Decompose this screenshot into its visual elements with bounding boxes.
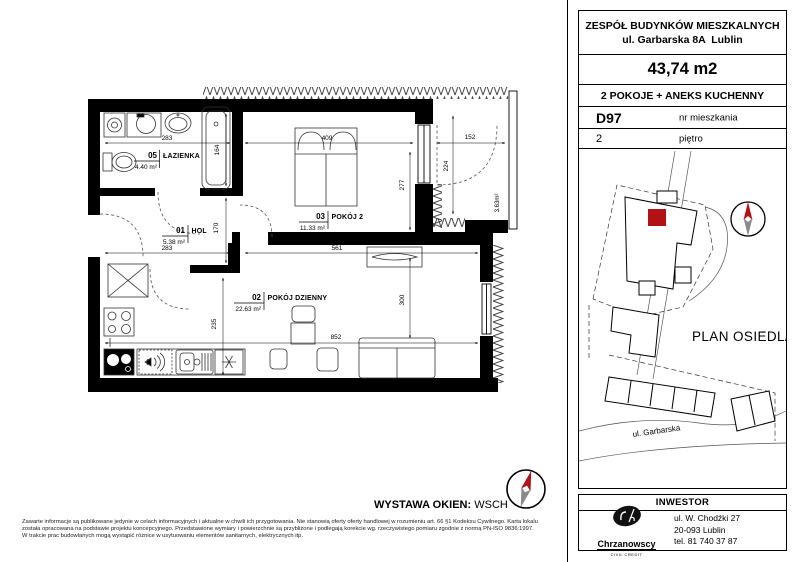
svg-text:HOL: HOL — [192, 228, 208, 235]
dim-living-total: 852 — [331, 334, 342, 341]
info-table: ZESPÓŁ BUDYNKÓW MIESZKALNYCH ul. Garbars… — [578, 10, 787, 489]
svg-text:POKÓJ 2: POKÓJ 2 — [332, 212, 364, 221]
dim-kitchen-height: 235 — [211, 318, 218, 329]
dim-bathtub: 164 — [214, 144, 221, 155]
investor-logo: Chrzanowscy CIVIL CREDIT — [579, 505, 674, 557]
dim-bedroom-height: 277 — [399, 179, 406, 190]
washing-machine — [104, 113, 125, 137]
sidebar: ZESPÓŁ BUDYNKÓW MIESZKALNYCH ul. Garbars… — [578, 0, 787, 562]
svg-text:01: 01 — [176, 226, 185, 235]
svg-text:4.40 m²: 4.40 m² — [135, 164, 158, 171]
disclaimer-line-3: W trakcie prac budowlanych mogą wystąpić… — [22, 533, 567, 540]
floor-label: piętro — [679, 133, 703, 144]
investor-address: ul. W. Chodźki 27 20-093 Lublin tel. 81 … — [674, 513, 740, 548]
investor-address-line2: 20-093 Lublin — [674, 525, 740, 537]
street-label: ul. Garbarska — [632, 423, 681, 439]
compass-icon — [503, 464, 549, 514]
dim-hall-width: 283 — [162, 245, 173, 252]
dishwasher — [139, 350, 172, 374]
room-label-hall: 01 HOL 5.38 m² — [162, 225, 207, 246]
svg-text:ŁAZIENKA: ŁAZIENKA — [163, 153, 200, 160]
total-area: 43,74 m2 — [579, 55, 786, 85]
site-compass-icon — [731, 202, 765, 236]
wardrobe — [108, 264, 148, 297]
investor-address-line3: tel. 81 740 37 87 — [674, 536, 740, 548]
dim-living-height: 300 — [399, 294, 406, 305]
balcony-area-label: 3.63m² — [495, 194, 501, 213]
building-3 — [605, 377, 715, 417]
building-4 — [731, 391, 775, 431]
toilet — [103, 153, 136, 172]
apartment-number-row: D97 nr mieszkania — [579, 107, 786, 129]
window-exposure-label: WYSTAWA OKIEN: — [374, 499, 471, 511]
sofa — [359, 338, 435, 378]
apartment-number: D97 — [596, 110, 622, 126]
fridge — [215, 350, 243, 374]
svg-text:11.33 m²: 11.33 m² — [300, 225, 326, 232]
apartment-number-label: nr mieszkania — [679, 112, 738, 123]
window-exposure: WYSTAWA OKIEN: WSCH — [374, 499, 508, 511]
investor-address-line1: ul. W. Chodźki 27 — [674, 513, 740, 525]
site-plan: PLAN OSIEDLA ul. Garbarska — [579, 149, 786, 489]
dim-balcony-height: 224 — [443, 160, 450, 171]
vertical-divider — [567, 0, 568, 562]
investor-logo-icon — [609, 505, 645, 529]
svg-text:POKÓJ DZIENNY: POKÓJ DZIENNY — [268, 293, 328, 302]
dim-bath-width: 283 — [162, 135, 173, 142]
building-2 — [611, 307, 659, 357]
highlighted-unit — [648, 209, 666, 226]
dim-bedroom-width: 409 — [322, 135, 333, 142]
bathroom-sink-round — [127, 113, 161, 137]
dim-balcony-width: 152 — [465, 134, 476, 141]
project-title: ZESPÓŁ BUDYNKÓW MIESZKALNYCH ul. Garbars… — [579, 11, 786, 55]
apartment-card-page: 283 164 283 170 409 277 152 224 3.63m² 5… — [0, 0, 800, 562]
disclaimer: Zawarte informacje są publikowane jedyni… — [22, 519, 567, 541]
layout-type: 2 POKOJE + ANEKS KUCHENNY — [579, 85, 786, 107]
bathroom-basin — [165, 113, 191, 133]
project-title-line1: ZESPÓŁ BUDYNKÓW MIESZKALNYCH — [585, 19, 779, 33]
room-label-bathroom: 05 ŁAZIENKA 4.40 m² — [134, 150, 200, 171]
svg-text:5.38 m²: 5.38 m² — [163, 239, 186, 246]
disclaimer-line-1: Zawarte informacje są publikowane jedyni… — [22, 519, 567, 526]
svg-text:02: 02 — [252, 293, 261, 302]
investor-logo-name: Chrzanowscy — [597, 540, 655, 550]
project-title-line2: ul. Garbarska 8A Lublin — [622, 33, 742, 47]
site-plan-drawing: PLAN OSIEDLA ul. Garbarska — [579, 149, 786, 489]
svg-text:05: 05 — [148, 151, 157, 160]
balcony-railing — [509, 91, 517, 229]
room-label-living: 02 POKÓJ DZIENNY 22.63 m² — [234, 292, 327, 313]
investor-body: Chrzanowscy CIVIL CREDIT ul. W. Chodźki … — [579, 511, 786, 550]
investor-box: INWESTOR Chrzanowscy CIVIL CREDIT ul. — [578, 494, 787, 551]
kitchen-sink — [176, 350, 213, 374]
svg-text:22.63 m²: 22.63 m² — [235, 306, 261, 313]
dim-living-width: 561 — [332, 245, 343, 252]
floor-number: 2 — [596, 133, 602, 145]
floor-row: 2 piętro — [579, 129, 786, 149]
site-plan-title: PLAN OSIEDLA — [692, 329, 786, 344]
floor-plan-drawing: 283 164 283 170 409 277 152 224 3.63m² 5… — [0, 0, 567, 515]
svg-text:03: 03 — [316, 212, 325, 221]
sideboard — [367, 247, 422, 267]
kitchen-corner-unit — [104, 349, 134, 375]
investor-logo-subtitle: CIVIL CREDIT — [579, 552, 674, 557]
room-labels: 05 ŁAZIENKA 4.40 m² 01 HOL 5.38 m² 03 PO… — [134, 150, 363, 313]
dining-table-chairs — [270, 306, 338, 371]
room-label-bedroom: 03 POKÓJ 2 11.33 m² — [299, 211, 363, 232]
disclaimer-line-2: została opracowana na podstawie projektu… — [22, 526, 567, 533]
stove — [104, 308, 134, 347]
dim-hall-height: 170 — [213, 222, 220, 233]
